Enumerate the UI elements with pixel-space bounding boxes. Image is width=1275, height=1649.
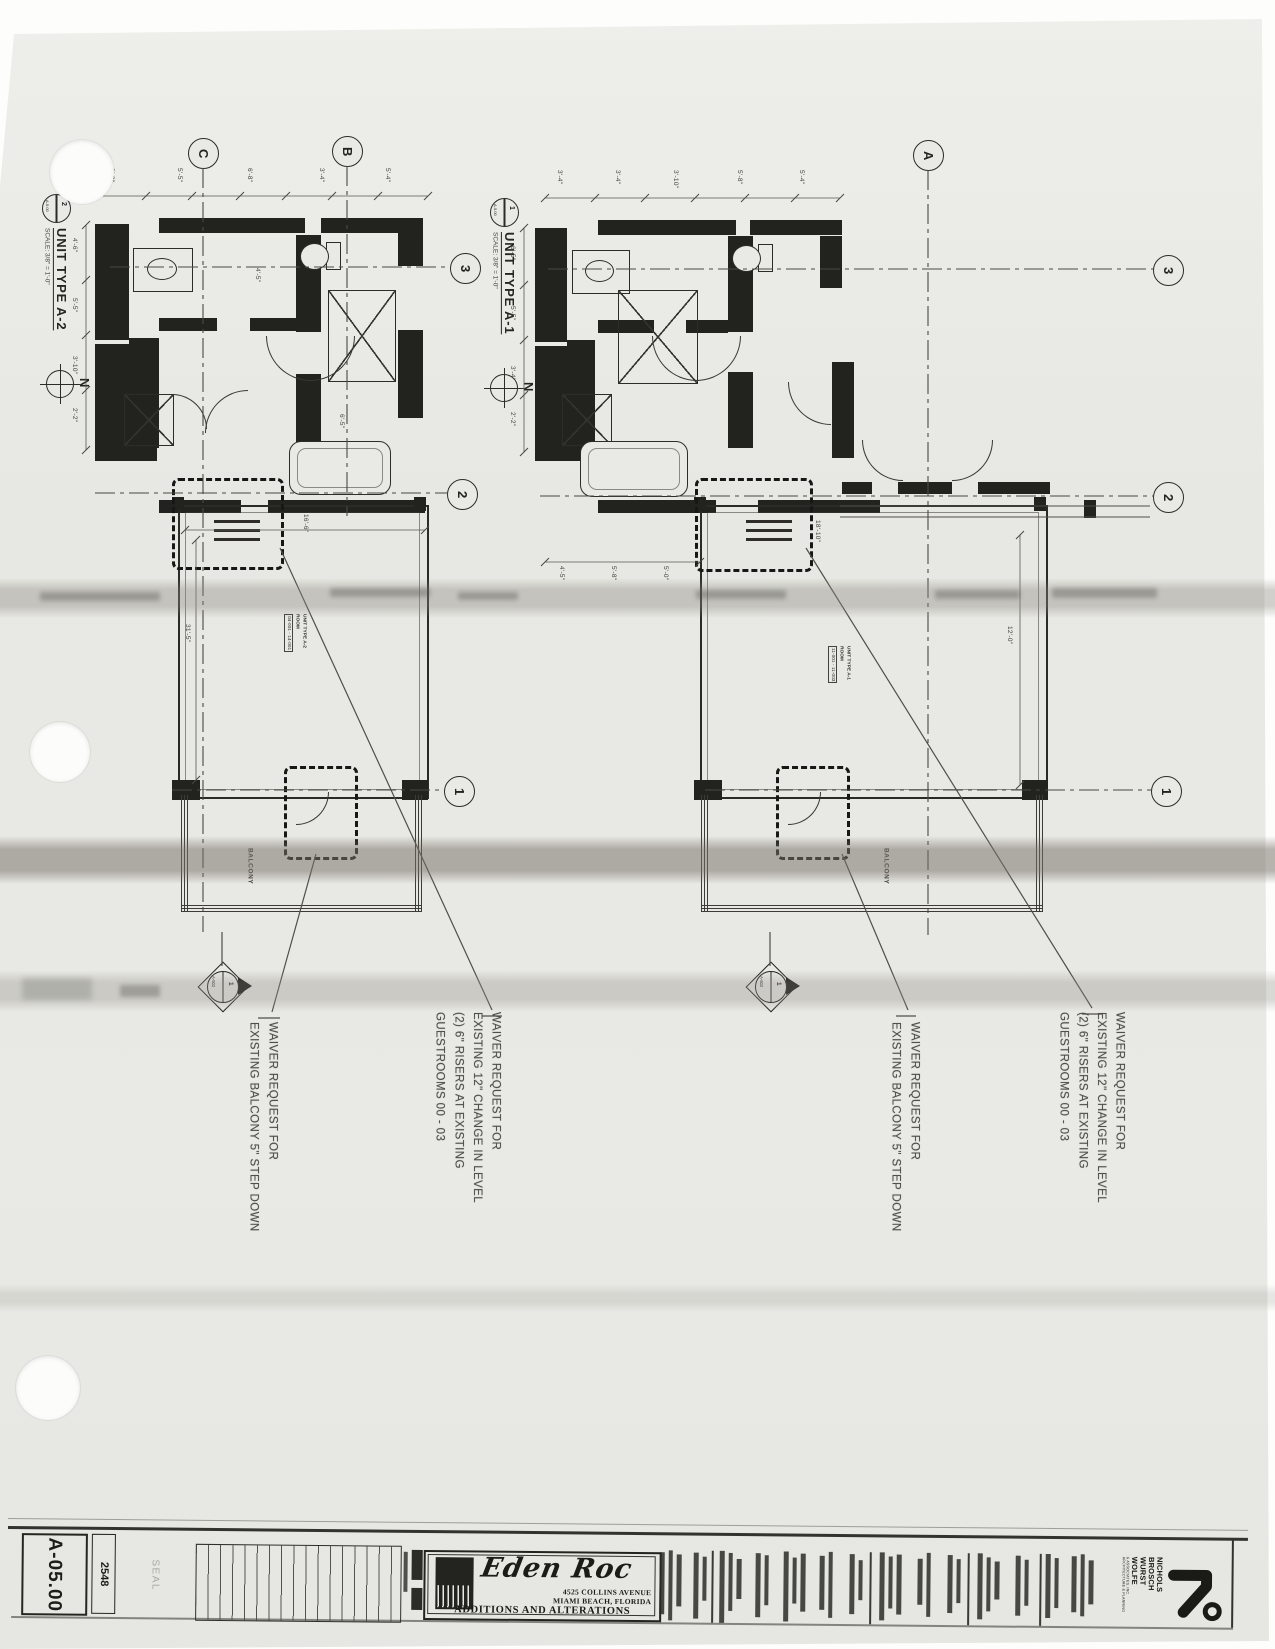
project-number: 2548 [98,1562,109,1587]
consultant-text-bar [917,1559,922,1605]
dimension-label: 18'-10" [814,520,821,542]
wall-segment [820,236,842,288]
riser-step-line [746,529,792,532]
waiver-note-risers: WAIVER REQUEST FOR EXISTING 12" CHANGE I… [1054,1012,1129,1244]
dimension-label: 4'-5" [558,566,565,580]
consultant-text-bar [977,1553,983,1619]
consultant-text-bar [926,1553,931,1617]
grid-bubble-2: 2 [447,479,478,510]
consultant-text-bar [792,1558,796,1604]
consultant-divider [869,1552,871,1624]
riser-step-line [746,538,792,541]
wall-segment [296,374,321,448]
column-capital-icon [435,1557,473,1609]
section-marker: 1 A-502 [755,971,787,1003]
dimension-label: 6'-5" [338,414,345,428]
dimension-label: 3'-10" [672,170,679,188]
consultant-text-bar [858,1560,862,1600]
sheet-number: A-05.00 [45,1537,65,1612]
hole-punch [50,140,114,204]
scan-smudge [330,588,430,597]
wall-segment [750,220,842,235]
consultant-text-bar [879,1552,885,1620]
shower-icon [562,394,612,446]
scan-smudge [935,590,1020,599]
dimension-label: 3'-10" [71,356,78,374]
consultant-text-bar [676,1554,681,1606]
wall-segment [398,330,423,418]
balcony-rail [701,905,1043,912]
architect-name: NICHOLS BROSCH WURST WOLFE & ASSOCIATES,… [1121,1557,1163,1625]
project-logo-box: Eden Roc 4525 COLLINS AVENUE MIAMI BEACH… [423,1550,662,1622]
waiver-area-dashed-box [172,478,284,570]
grid-bubble-3: 3 [1153,255,1184,286]
balcony-label: BALCONY [882,848,889,884]
north-arrow-icon [46,370,74,398]
seal-label: SEAL [149,1559,159,1591]
grid-bubble-c: C [188,138,219,169]
dimension-label: 6'-8" [246,168,253,182]
consultant-text-bar [947,1555,953,1613]
section-number: 1 [775,982,782,986]
consultant-text-bar [1015,1556,1021,1616]
consultant-text-bar [1071,1556,1077,1612]
consultant-text-bar [1054,1558,1058,1608]
waiver-note-balcony: WAIVER REQUEST FOR EXISTING BALCONY 5" S… [886,1022,923,1294]
toilet-bowl-icon [300,243,329,270]
consultant-text-bar [764,1555,768,1605]
consultant-text-bar [1080,1554,1085,1616]
consultant-text-bar [994,1561,999,1599]
revision-table [195,1544,402,1623]
consultant-text-bar [888,1556,892,1608]
scan-smudge [22,978,92,1000]
project-logo-name: Eden Roc [479,1553,635,1585]
tag-number: 2 [60,202,67,206]
sink-icon [147,258,177,280]
grid-bubble-b: B [332,136,363,167]
bathtub-inner-line [588,448,680,490]
room-label: UNIT TYPE A-1 ROOM 11-001 - 11-003 [828,646,852,683]
section-number: 1 [227,982,234,986]
consultant-text-bar [736,1559,741,1599]
consultant-text-bar [1088,1560,1093,1604]
wall-segment [832,362,854,458]
grid-bubble-1: 1 [1151,776,1182,807]
wall-segment [978,482,1050,494]
bathtub-inner-line [297,448,383,488]
dimension-label: 12'-0" [1006,626,1013,644]
consultant-directory [659,1550,1100,1628]
riser-step-line [214,520,260,523]
dimension-label: 16'-6" [302,514,309,532]
scanned-sheet: BALCONY 1 A-502 UNIT TYPE A-2 ROOM 04-00… [0,0,1275,1649]
grid-bubble-a: A [913,140,944,171]
consultant-text-bar [755,1553,761,1617]
dimension-label: 5'-0" [662,566,669,580]
title-block: A-05.00 2548 SEAL Eden Roc 4525 COLLINS … [7,1526,1252,1642]
consultant-text-bar [668,1550,673,1620]
pier [1022,780,1048,800]
title-block-right-border [1231,1540,1234,1628]
balcony-rail [415,795,422,911]
issue-stamp [411,1588,422,1610]
scan-smudge [1052,588,1157,598]
dimension-label: 3'-4" [318,168,325,182]
section-sheet: A-502 [211,976,216,987]
consultant-divider [1039,1554,1041,1626]
project-subtitle: ADDITIONS AND ALTERATIONS [431,1604,653,1617]
north-label: N [522,382,535,391]
consultant-text-bar [1024,1560,1028,1606]
pier [694,780,722,800]
dimension-label: 5'-8" [610,566,617,580]
consultant-text-bar [800,1554,806,1612]
balcony-label: BALCONY [246,848,253,884]
scan-smudge [696,590,786,599]
scan-smudge [120,985,160,997]
tag-number: 1 [508,206,515,210]
consultant-text-bar [896,1555,902,1615]
consultant-text-bar [828,1552,833,1618]
grid-bubble-1: 1 [444,776,475,807]
wall-segment [1084,500,1096,518]
grid-bubble-2: 2 [1153,482,1184,513]
dimension-label: 6'-5" [509,246,516,260]
waiver-note-balcony: WAIVER REQUEST FOR EXISTING BALCONY 5" S… [244,1022,281,1294]
section-marker: 1 A-502 [207,971,239,1003]
consultant-text-bar [719,1551,725,1623]
dimension-label: 2'-2" [509,412,516,426]
consultant-text-bar [1045,1554,1051,1618]
sink-icon [585,260,614,282]
balcony-rail [181,905,422,912]
shower-icon [124,394,174,446]
wall-segment [95,224,129,340]
section-marker-fill [786,977,800,995]
section-marker-fill [238,977,252,995]
consultant-text-bar [693,1553,699,1619]
riser-step-line [746,520,792,523]
hole-punch [16,1356,80,1420]
waiver-note-risers: WAIVER REQUEST FOR EXISTING 12" CHANGE I… [430,1012,505,1244]
scan-smudge [40,592,160,601]
wall-segment [598,220,736,235]
consultant-divider [967,1553,969,1625]
tag-sheet: A-5.00 [45,200,50,212]
balcony-rail [701,795,708,911]
issue-stamp [412,1550,423,1580]
dimension-label: 2'-2" [71,408,78,422]
riser-step-line [214,529,260,532]
dimension-label: 5'-4" [384,168,391,182]
pier [414,497,426,511]
tag-sheet: A-5.00 [493,204,498,216]
drawing-tag-bubble: 1 A-5.00 [490,198,519,227]
wall-segment [398,218,423,266]
dimension-label: 4'-6" [71,238,78,252]
dimension-label: 5'-8" [736,170,743,184]
project-number-box: 2548 [91,1534,116,1614]
wall-segment [728,372,753,448]
waiver-area-dashed-box [695,478,813,572]
room-label: UNIT TYPE A-2 ROOM 04-001 - 14-001 [284,614,308,652]
consultant-divider [711,1551,713,1623]
dimension-label: 4'-5" [254,268,261,282]
section-sheet: A-502 [759,976,764,987]
dimension-label: 5'-4" [798,170,805,184]
consultant-text-bar [986,1557,991,1611]
wall-segment [159,218,305,233]
plan-title-a2: UNIT TYPE A-2 SCALE: 3/8" = 1'-0" [40,228,70,388]
wall-segment [842,482,872,494]
consultant-text-bar [819,1556,825,1610]
consultant-text-bar [728,1553,733,1611]
riser-step-line [214,538,260,541]
issue-stamp [403,1552,407,1592]
wall-segment [95,448,157,461]
consultant-text-bar [849,1554,855,1614]
toilet-bowl-icon [732,245,761,272]
architect-logo-icon [1159,1559,1224,1624]
dimension-label: 3'-4" [614,170,621,184]
dimension-label: 3'-4" [556,170,563,184]
consultant-text-bar [702,1557,706,1601]
scan-smudge [458,592,518,600]
wall-segment [898,482,952,494]
north-label: N [78,378,91,387]
grid-bubble-3: 3 [450,253,481,284]
consultant-text-bar [659,1552,665,1614]
dimension-label: 5'-5" [509,306,516,320]
dimension-label: 31'-5" [184,624,191,642]
dimension-label: 3'-4" [509,366,516,380]
consultant-text-bar [783,1551,789,1621]
balcony-rail [181,795,188,911]
pier [1034,497,1046,511]
wall-segment [250,318,299,331]
wall-segment [535,228,567,342]
dimension-label: 5'-5" [176,168,183,182]
dimension-label: 5'-5" [71,298,78,312]
wall-segment [159,318,217,331]
balcony-rail [1036,795,1043,911]
project-address: 4525 COLLINS AVENUE MIAMI BEACH, FLORIDA [515,1587,651,1606]
sheet-number-box: A-05.00 [21,1533,88,1616]
consultant-text-bar [956,1559,960,1603]
hole-punch [30,722,90,782]
